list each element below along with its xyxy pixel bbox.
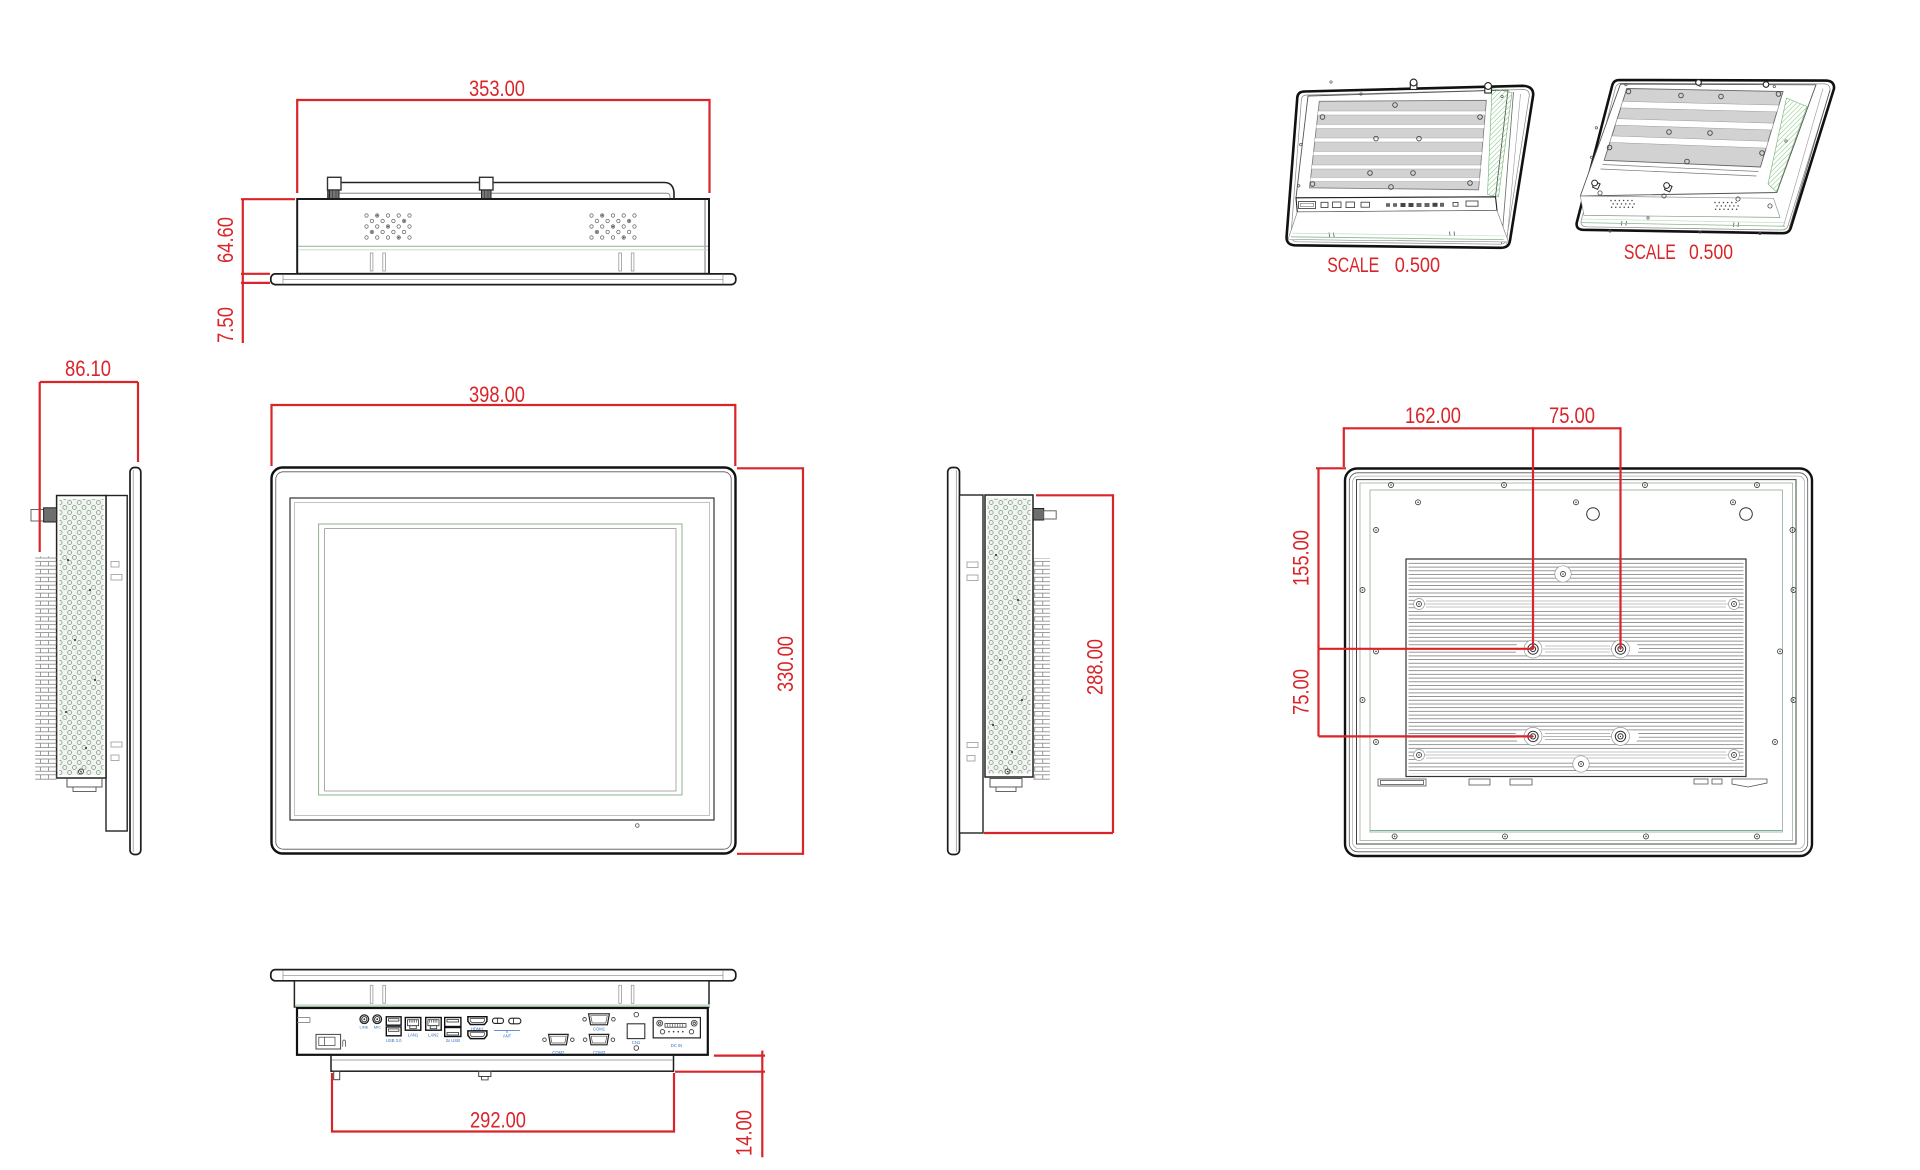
svg-text:LINE: LINE	[360, 1025, 369, 1030]
svg-text:2x USB: 2x USB	[446, 1038, 460, 1043]
svg-text:0.500: 0.500	[1689, 240, 1733, 264]
svg-text:64.60: 64.60	[213, 217, 238, 263]
svg-text:330.00: 330.00	[773, 636, 798, 692]
svg-text:COM1: COM1	[593, 1026, 606, 1031]
svg-text:162.00: 162.00	[1405, 403, 1461, 428]
svg-text:LAN2: LAN2	[428, 1033, 439, 1038]
svg-text:75.00: 75.00	[1549, 403, 1595, 428]
svg-text:MIC: MIC	[374, 1025, 381, 1030]
svg-text:SCALE: SCALE	[1327, 253, 1379, 277]
svg-text:DC IN: DC IN	[671, 1043, 682, 1048]
svg-text:155.00: 155.00	[1289, 530, 1314, 586]
svg-text:CN1: CN1	[632, 1040, 641, 1045]
svg-text:ANT: ANT	[503, 1034, 512, 1039]
svg-text:7.50: 7.50	[213, 307, 238, 343]
svg-text:292.00: 292.00	[470, 1108, 526, 1133]
svg-text:353.00: 353.00	[469, 76, 525, 101]
svg-text:398.00: 398.00	[469, 382, 525, 407]
svg-text:86.10: 86.10	[65, 356, 111, 381]
svg-text:LAN1: LAN1	[408, 1033, 419, 1038]
svg-text:USB 3.0: USB 3.0	[386, 1038, 402, 1043]
svg-text:75.00: 75.00	[1289, 669, 1314, 715]
svg-text:288.00: 288.00	[1083, 639, 1108, 695]
svg-text:COM2: COM2	[552, 1050, 565, 1055]
svg-text:0.500: 0.500	[1395, 253, 1440, 277]
svg-text:14.00: 14.00	[732, 1110, 757, 1156]
svg-text:SCALE: SCALE	[1624, 240, 1676, 264]
svg-text:COM3: COM3	[593, 1050, 606, 1055]
